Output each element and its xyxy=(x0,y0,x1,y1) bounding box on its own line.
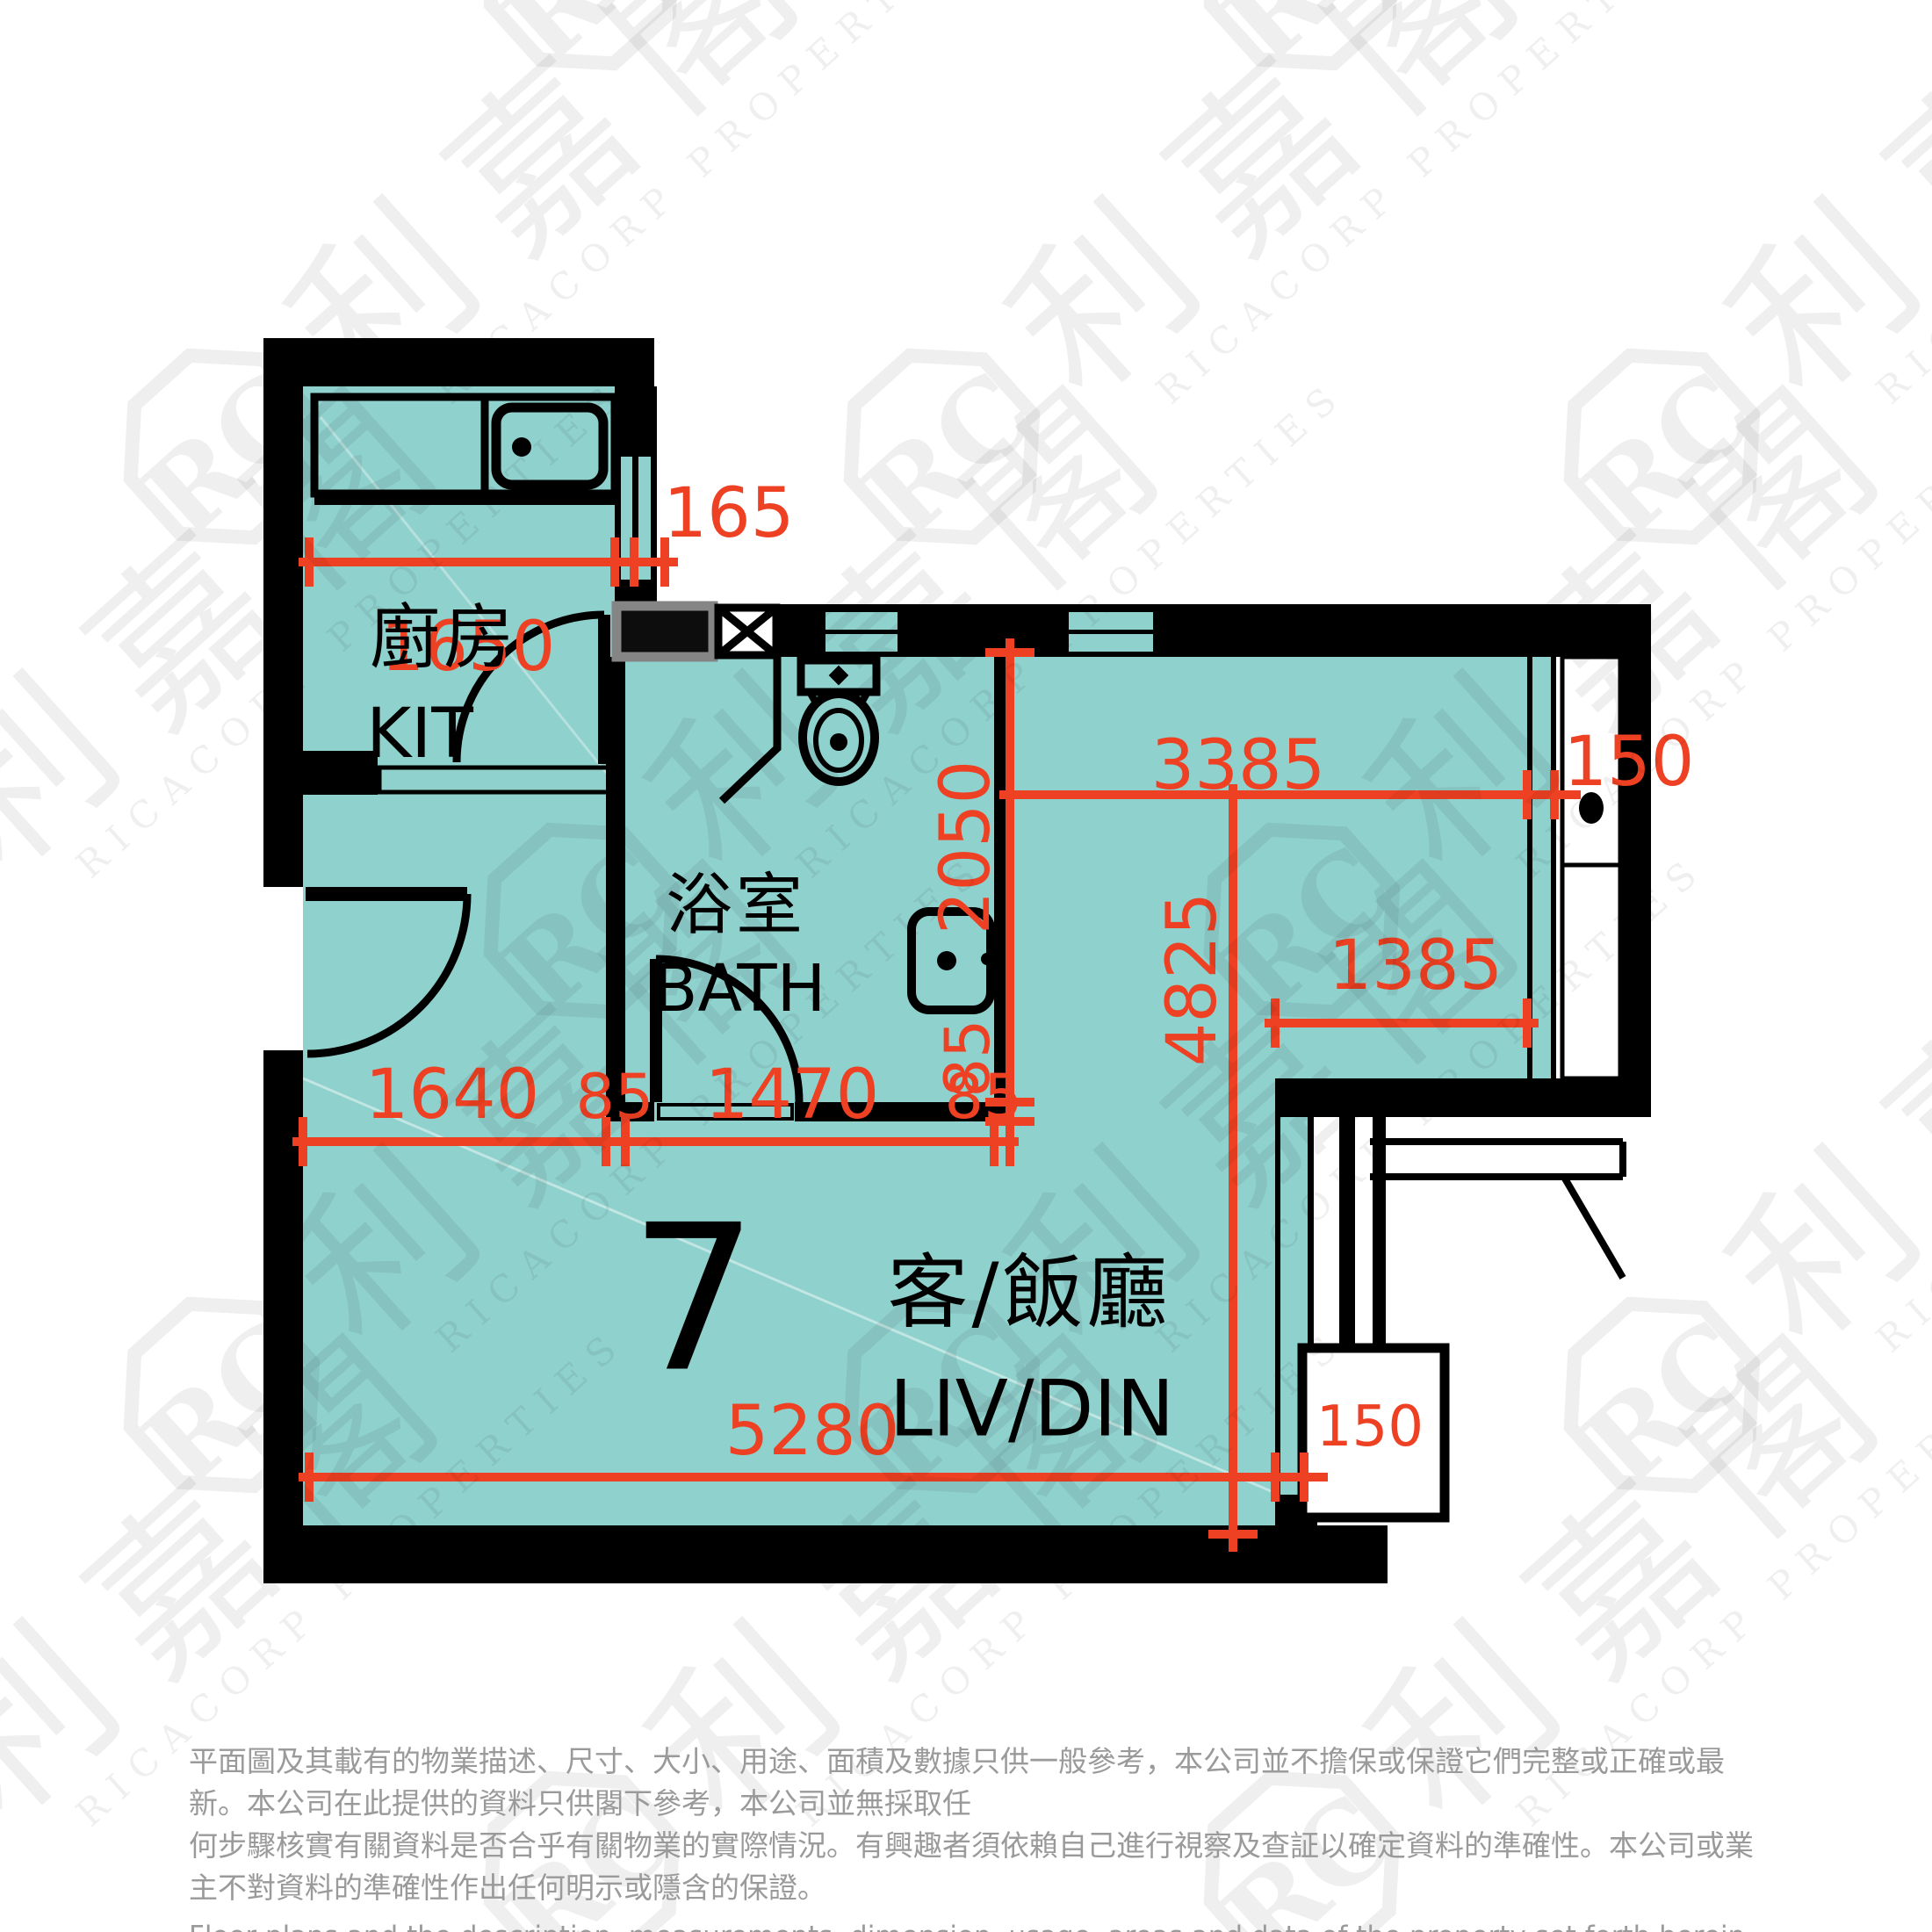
dim-top-width: 3385 xyxy=(1151,726,1326,805)
bay-window xyxy=(1527,657,1620,1078)
dim-bath-west-wall: 85 xyxy=(575,1061,653,1133)
floor-plan-canvas: 1650 165 3385 150 1385 1640 85 1470 85 5… xyxy=(0,0,1932,1932)
dim-bay-width: 1385 xyxy=(1329,926,1503,1006)
disclaimer-en-line1: Floor plans and the description, measure… xyxy=(189,1917,1770,1932)
dim-hall-width: 1640 xyxy=(365,1056,540,1135)
dim-bath-height: 2050 xyxy=(926,761,1006,935)
dim-bottom-right-wall: 150 xyxy=(1316,1395,1424,1460)
room-label-bath-zh: 浴室 xyxy=(666,866,806,944)
washer-icon xyxy=(616,606,713,657)
room-label-bath-en: BATH xyxy=(653,951,826,1027)
x-box-icon xyxy=(718,608,776,655)
unit-number: 7 xyxy=(630,1183,758,1417)
disclaimer: 平面圖及其載有的物業描述、尺寸、大小、用途、面積及數據只供一般參考，本公司並不擔… xyxy=(189,1741,1770,1932)
dim-bath-south-wall: 85 xyxy=(932,1019,1004,1097)
dim-bath-width: 1470 xyxy=(705,1056,880,1135)
dim-kitchen-wall: 165 xyxy=(664,474,795,553)
dim-top-right-wall: 150 xyxy=(1564,723,1695,802)
disclaimer-zh-line1: 平面圖及其載有的物業描述、尺寸、大小、用途、面積及數據只供一般參考，本公司並不擔… xyxy=(189,1741,1770,1825)
room-label-living-zh: 客/飯廳 xyxy=(888,1246,1171,1340)
room-label-living-en: LIV/DIN xyxy=(890,1364,1174,1454)
floor-plan-page: 1650 165 3385 150 1385 1640 85 1470 85 5… xyxy=(0,0,1932,1932)
room-label-kitchen-en: KIT xyxy=(366,695,473,774)
disclaimer-zh-line2: 何步驟核實有關資料是否合乎有關物業的實際情況。有興趣者須依賴自己進行視察及查証以… xyxy=(189,1825,1770,1909)
dim-living-height: 4825 xyxy=(1153,892,1232,1067)
room-label-kitchen-zh: 廚房 xyxy=(370,597,517,679)
canopy-outline xyxy=(1370,1142,1623,1278)
